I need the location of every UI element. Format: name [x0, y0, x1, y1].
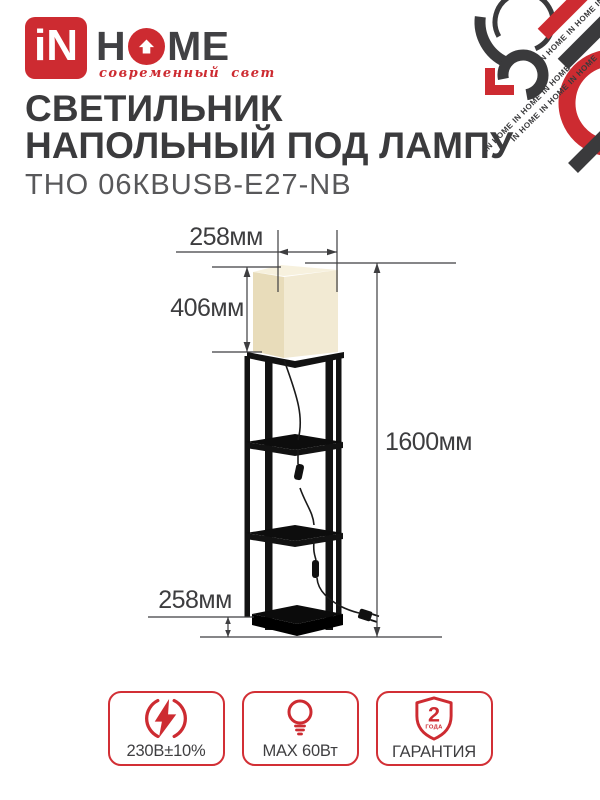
title-line-2: НАПОЛЬНЫЙ ПОД ЛАМПУ — [25, 127, 513, 164]
cord-switch — [293, 463, 304, 480]
lampshade — [253, 265, 338, 358]
dimension-label: 258мм — [158, 586, 232, 614]
warranty-shield-icon: 2 ГОДА — [411, 696, 457, 741]
dimension-label: 1600мм — [385, 428, 472, 456]
badge-max-wattage: MAX 60Вт — [242, 691, 359, 766]
logo-letter-h: H — [96, 23, 126, 70]
cord-switch-2 — [312, 560, 319, 578]
voltage-icon — [142, 697, 190, 740]
feature-badges: 230В±10% MAX 60Вт 2 ГОДА ГАРАНТИЯ — [0, 691, 600, 766]
model-number: ТНО 06КBUSB-E27-NB — [25, 169, 352, 202]
home-icon — [128, 28, 165, 65]
warranty-years: 2 — [428, 702, 440, 726]
logo-mark: iN — [34, 24, 78, 68]
bulb-icon — [277, 697, 323, 740]
shelf-frame — [245, 352, 345, 636]
page-title: СВЕТИЛЬНИК НАПОЛЬНЫЙ ПОД ЛАМПУ — [25, 90, 513, 164]
dimension-base-depth: 258мм — [148, 586, 254, 637]
logo-in-badge: iN — [25, 17, 87, 79]
product-card: iN H ME современный свет IN HOME IN HOME… — [0, 0, 600, 800]
badge-warranty: 2 ГОДА ГАРАНТИЯ — [376, 691, 493, 766]
badge-label: 230В±10% — [126, 742, 205, 761]
warranty-years-unit: ГОДА — [425, 724, 443, 730]
product-diagram: 258мм 406мм 1600мм 258мм — [90, 218, 480, 658]
badge-label: MAX 60Вт — [262, 742, 337, 761]
dimension-label: 406мм — [170, 294, 244, 322]
dimension-label: 258мм — [189, 223, 263, 251]
power-plug — [357, 608, 379, 624]
badge-label: ГАРАНТИЯ — [392, 743, 476, 762]
badge-voltage: 230В±10% — [108, 691, 225, 766]
logo-letters-me: ME — [167, 23, 230, 70]
brand-tagline: современный свет — [99, 66, 276, 81]
logo-home-word: H ME — [96, 23, 230, 70]
title-line-1: СВЕТИЛЬНИК — [25, 90, 513, 127]
